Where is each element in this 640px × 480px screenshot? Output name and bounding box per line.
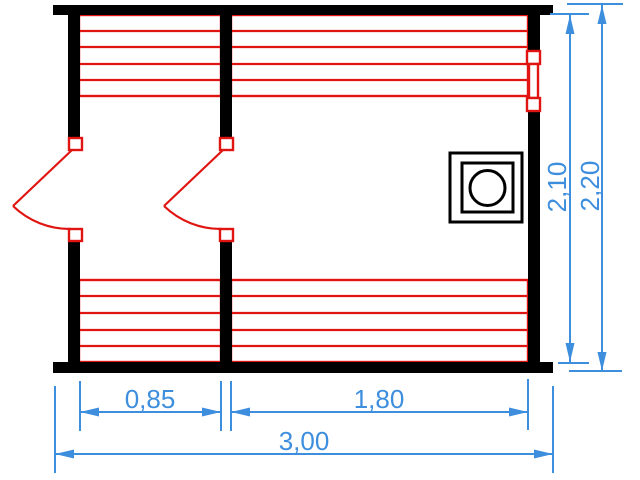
- dimension-inner-height: 2,10: [542, 15, 575, 362]
- wall-top: [53, 5, 553, 15]
- door-leaf: [164, 150, 223, 206]
- arrow-right-icon: [509, 408, 528, 417]
- floor-plan-page: 0,85 1,80 3,00 2,10 2,20: [0, 0, 640, 480]
- door-jamb-bottom: [69, 229, 82, 241]
- window-frame-top: [527, 51, 540, 64]
- arrow-down-icon: [598, 352, 607, 371]
- arrow-up-icon: [598, 5, 607, 24]
- wall-partition-lower: [220, 241, 232, 362]
- stove-circle: [470, 171, 505, 206]
- arrow-down-icon: [566, 343, 575, 362]
- door-swing-arc: [164, 206, 222, 229]
- stove: [450, 153, 522, 222]
- dimension-label-180: 1,80: [354, 384, 405, 414]
- wall-partition-upper: [220, 15, 232, 138]
- door-left: [13, 138, 82, 241]
- bench-bottom-left: [79, 280, 221, 362]
- dimension-label-300: 3,00: [279, 426, 330, 456]
- dimension-left-section: 0,85: [80, 384, 221, 417]
- bench-top-left: [79, 15, 221, 96]
- door-leaf: [13, 150, 72, 206]
- window-glazing: [529, 64, 538, 98]
- bench-top-right: [231, 15, 528, 96]
- door-jamb-top: [69, 138, 82, 150]
- arrow-left-icon: [231, 408, 250, 417]
- window: [527, 51, 540, 111]
- dimension-label-085: 0,85: [125, 384, 176, 414]
- dimension-label-210: 2,10: [542, 162, 572, 213]
- door-middle: [164, 138, 233, 241]
- dimension-total-width: 3,00: [55, 426, 553, 459]
- door-swing-arc: [13, 206, 71, 229]
- wall-bottom: [53, 362, 553, 373]
- bench-bottom-right: [231, 280, 528, 362]
- wall-right-lower: [528, 111, 540, 362]
- wall-left-upper: [68, 15, 80, 138]
- dimension-outer-height: 2,20: [575, 5, 607, 371]
- bench-outline: [79, 280, 221, 362]
- window-frame-bottom: [527, 98, 540, 111]
- door-jamb-bottom: [220, 229, 233, 241]
- wall-right-upper: [528, 15, 540, 51]
- arrow-right-icon: [202, 408, 221, 417]
- arrow-left-icon: [80, 408, 99, 417]
- bench-outline: [231, 280, 528, 362]
- arrow-left-icon: [55, 450, 74, 459]
- wall-left-lower: [68, 241, 80, 362]
- floor-plan-canvas: 0,85 1,80 3,00 2,10 2,20: [0, 0, 640, 480]
- door-jamb-top: [220, 138, 233, 150]
- arrow-right-icon: [534, 450, 553, 459]
- arrow-up-icon: [566, 15, 575, 34]
- dimension-label-220: 2,20: [575, 161, 605, 212]
- bench-outline: [79, 15, 221, 96]
- dimension-right-section: 1,80: [231, 384, 528, 417]
- bench-outline: [231, 15, 528, 96]
